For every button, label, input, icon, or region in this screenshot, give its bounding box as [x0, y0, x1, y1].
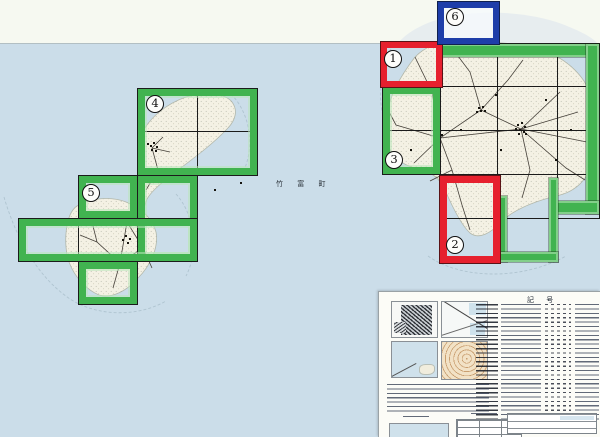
legend-glyph-column [545, 304, 571, 422]
legend-caption-left [403, 416, 429, 419]
map-index-viewport: 1 2 3 4 5 6 竹 富 町 記 号 [0, 0, 600, 437]
legend-locator-map [389, 423, 449, 437]
coverage-strip-southeast-corner [552, 201, 599, 214]
legend-notes [387, 384, 489, 414]
municipality-label: 竹 富 町 [276, 179, 331, 189]
legend-label-column-1 [501, 304, 541, 422]
legend-label-column-2 [575, 304, 599, 422]
coverage-strip-inner-east [549, 178, 558, 262]
coverage-strip-east [586, 44, 599, 214]
legend-scale-table [507, 413, 597, 434]
legend-panel: 記 号 [378, 291, 600, 437]
coverage-cell-south[interactable] [79, 262, 137, 304]
sheet-top-margin [0, 0, 600, 43]
sheet-marker-2: 2 [446, 236, 464, 254]
coverage-cell-west-bar[interactable] [19, 219, 197, 261]
legend-sample-map-urban [391, 301, 438, 338]
coverage-strip-inner-bottom [498, 252, 558, 262]
sheet-marker-6: 6 [446, 8, 464, 26]
sheet-marker-5: 5 [82, 184, 100, 202]
legend-caption-right [471, 413, 497, 416]
selected-sheet-6[interactable] [438, 2, 499, 44]
sheet-marker-4: 4 [146, 95, 164, 113]
sheet-marker-1: 1 [384, 50, 402, 68]
coverage-strip-top [441, 44, 599, 57]
legend-sample-map-sea [391, 341, 438, 378]
sheet-marker-3: 3 [385, 151, 403, 169]
